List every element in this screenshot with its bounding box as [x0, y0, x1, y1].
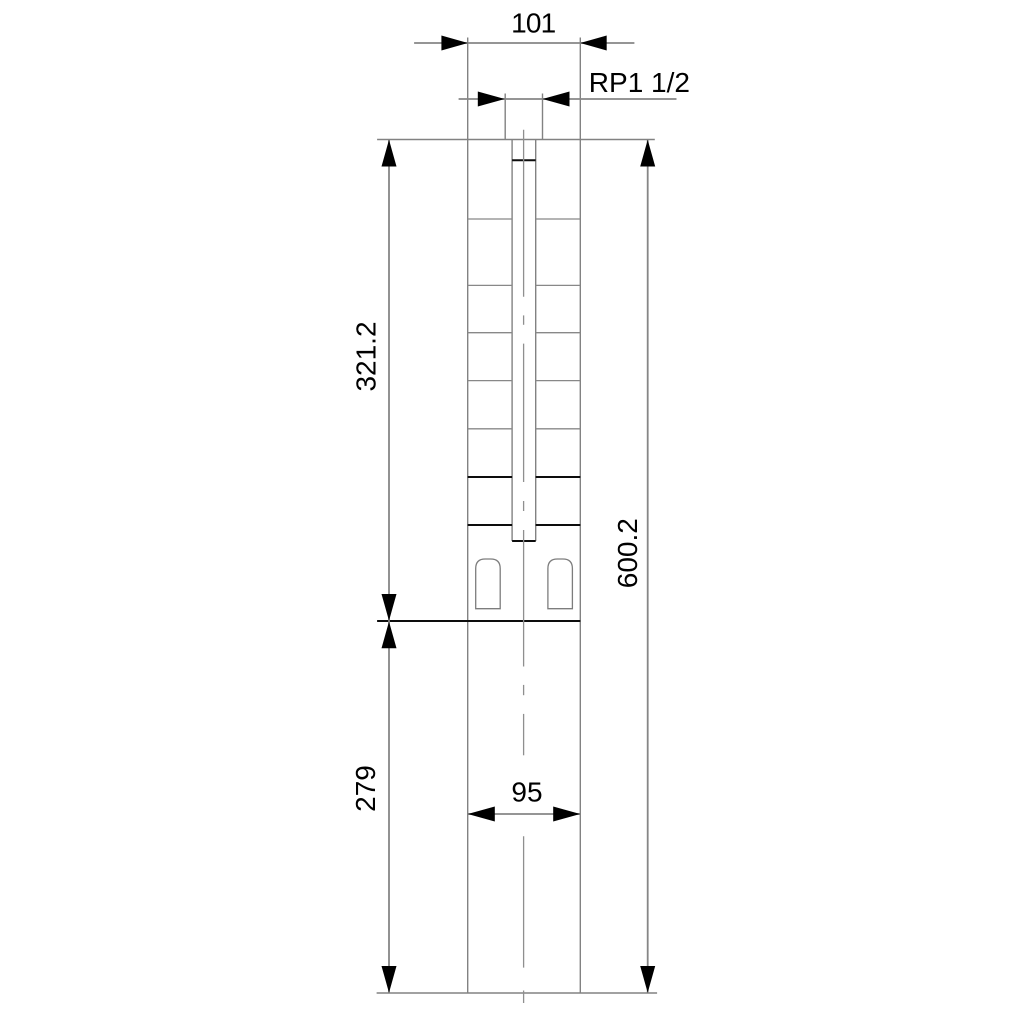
- svg-text:279: 279: [350, 765, 381, 812]
- svg-text:101: 101: [511, 8, 556, 39]
- svg-text:321.2: 321.2: [351, 321, 382, 391]
- svg-text:RP1 1/2: RP1 1/2: [589, 67, 690, 98]
- svg-text:600.2: 600.2: [612, 518, 643, 588]
- svg-text:95: 95: [511, 777, 542, 808]
